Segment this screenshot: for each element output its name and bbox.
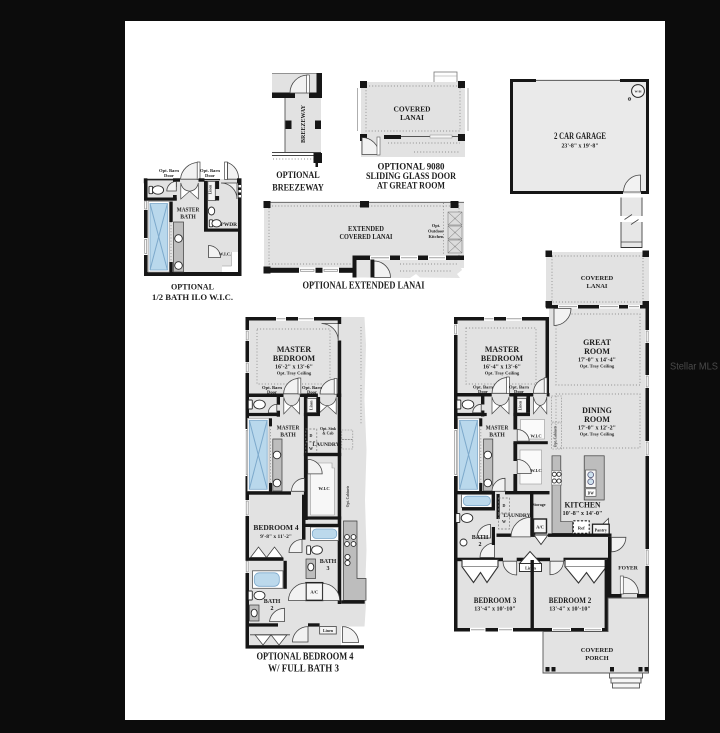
- svg-text:OPTIONAL BEDROOM 4: OPTIONAL BEDROOM 4: [257, 652, 354, 663]
- svg-text:BREEZEWAY: BREEZEWAY: [272, 182, 324, 192]
- svg-text:DW: DW: [588, 491, 595, 495]
- svg-text:W.I.C.: W.I.C.: [219, 252, 231, 257]
- svg-text:Ref: Ref: [578, 526, 585, 531]
- svg-text:Pantry: Pantry: [595, 527, 608, 532]
- svg-text:Kitchen: Kitchen: [429, 234, 444, 239]
- svg-text:BATH: BATH: [489, 431, 505, 438]
- svg-text:Linen: Linen: [309, 400, 313, 410]
- svg-text:MASTER: MASTER: [277, 345, 311, 354]
- svg-text:SLIDING GLASS DOOR: SLIDING GLASS DOOR: [366, 172, 456, 182]
- svg-text:Opt. Tray Ceiling: Opt. Tray Ceiling: [580, 432, 615, 437]
- svg-text:Door: Door: [307, 390, 317, 395]
- svg-text:ROOM: ROOM: [584, 415, 610, 424]
- svg-text:COVERED LANAI: COVERED LANAI: [340, 233, 393, 241]
- svg-text:Linen: Linen: [209, 184, 213, 194]
- svg-text:Door: Door: [478, 389, 488, 394]
- svg-text:BATH: BATH: [180, 213, 196, 220]
- svg-text:Opt. Tray Ceiling: Opt. Tray Ceiling: [580, 364, 615, 369]
- svg-text:OPTIONAL EXTENDED LANAI: OPTIONAL EXTENDED LANAI: [303, 280, 425, 291]
- svg-text:W.I.C: W.I.C: [530, 434, 541, 439]
- svg-text:LANAI: LANAI: [400, 113, 424, 122]
- svg-text:BATH: BATH: [280, 431, 296, 438]
- svg-text:OPTIONAL: OPTIONAL: [276, 170, 320, 180]
- svg-text:23'-8" x 19'-8": 23'-8" x 19'-8": [562, 143, 599, 150]
- svg-text:2: 2: [271, 606, 274, 612]
- svg-text:Stellar MLS: Stellar MLS: [670, 362, 718, 373]
- svg-text:PWDR: PWDR: [221, 222, 238, 228]
- svg-text:Outdoor: Outdoor: [428, 229, 444, 234]
- svg-text:W/ FULL BATH 3: W/ FULL BATH 3: [268, 663, 339, 674]
- svg-text:Opt. Tray Ceiling: Opt. Tray Ceiling: [485, 371, 520, 376]
- svg-text:Door: Door: [164, 173, 174, 178]
- svg-text:2: 2: [479, 542, 482, 548]
- svg-text:DINING: DINING: [582, 406, 612, 415]
- svg-text:BEDROOM 2: BEDROOM 2: [549, 596, 592, 605]
- svg-text:BEDROOM: BEDROOM: [481, 354, 524, 363]
- svg-text:BATH: BATH: [264, 599, 281, 605]
- svg-text:OPTIONAL 9080: OPTIONAL 9080: [378, 162, 445, 172]
- svg-text:Opt.: Opt.: [432, 223, 440, 228]
- svg-text:LANAI: LANAI: [587, 283, 608, 290]
- svg-text:EXTENDED: EXTENDED: [348, 225, 384, 233]
- svg-text:MASTER: MASTER: [485, 345, 519, 354]
- svg-text:& Cab: & Cab: [322, 432, 333, 436]
- svg-text:W: W: [502, 519, 506, 524]
- svg-text:3: 3: [327, 566, 330, 572]
- svg-text:A/C: A/C: [536, 525, 544, 530]
- svg-text:D: D: [503, 503, 506, 508]
- svg-text:Opt. Cabinets: Opt. Cabinets: [346, 485, 350, 507]
- svg-text:1/2 BATH ILO W.I.C.: 1/2 BATH ILO W.I.C.: [152, 293, 233, 302]
- svg-text:2 CAR GARAGE: 2 CAR GARAGE: [554, 131, 606, 141]
- svg-text:KITCHEN: KITCHEN: [565, 501, 601, 510]
- svg-text:W.I.C: W.I.C: [318, 486, 329, 491]
- svg-text:GREAT: GREAT: [583, 338, 612, 347]
- svg-text:PORCH: PORCH: [585, 655, 608, 662]
- svg-text:BATH: BATH: [320, 559, 337, 565]
- svg-text:Storage: Storage: [532, 502, 545, 507]
- svg-text:COVERED: COVERED: [581, 275, 614, 282]
- svg-text:W: W: [309, 446, 313, 451]
- svg-text:BATH: BATH: [472, 535, 489, 541]
- svg-text:Opt. Sink: Opt. Sink: [320, 427, 337, 431]
- svg-text:AT GREAT ROOM: AT GREAT ROOM: [377, 181, 445, 191]
- svg-text:A/C: A/C: [310, 590, 318, 595]
- svg-text:FOYER: FOYER: [618, 566, 638, 572]
- svg-text:LAUNDRY: LAUNDRY: [312, 442, 339, 448]
- svg-text:BEDROOM 4: BEDROOM 4: [253, 523, 298, 532]
- svg-text:Linen: Linen: [323, 628, 334, 633]
- svg-text:Opt. Cabinets: Opt. Cabinets: [554, 425, 558, 447]
- svg-text:Opt. Tray Ceiling: Opt. Tray Ceiling: [277, 371, 312, 376]
- svg-text:W.I.C: W.I.C: [530, 468, 541, 473]
- svg-text:Door: Door: [514, 389, 524, 394]
- svg-text:BREEZEWAY: BREEZEWAY: [301, 104, 307, 143]
- svg-text:D: D: [310, 433, 313, 438]
- svg-text:Door: Door: [267, 390, 277, 395]
- svg-text:Door: Door: [205, 173, 215, 178]
- svg-text:Linen: Linen: [518, 400, 522, 410]
- svg-text:OPTIONAL: OPTIONAL: [171, 282, 214, 291]
- svg-text:COVERED: COVERED: [581, 647, 614, 654]
- svg-text:ROOM: ROOM: [584, 347, 610, 356]
- svg-text:13'-4" x 10'-10": 13'-4" x 10'-10": [474, 606, 516, 612]
- svg-text:9'-8" x 11'-2": 9'-8" x 11'-2": [260, 534, 292, 540]
- svg-text:BEDROOM: BEDROOM: [273, 354, 316, 363]
- svg-text:W/H: W/H: [635, 90, 642, 94]
- svg-text:13'-4" x 10'-10": 13'-4" x 10'-10": [549, 606, 591, 612]
- svg-text:10'-8" x 14'-0": 10'-8" x 14'-0": [563, 511, 603, 517]
- svg-text:BEDROOM 3: BEDROOM 3: [474, 596, 517, 605]
